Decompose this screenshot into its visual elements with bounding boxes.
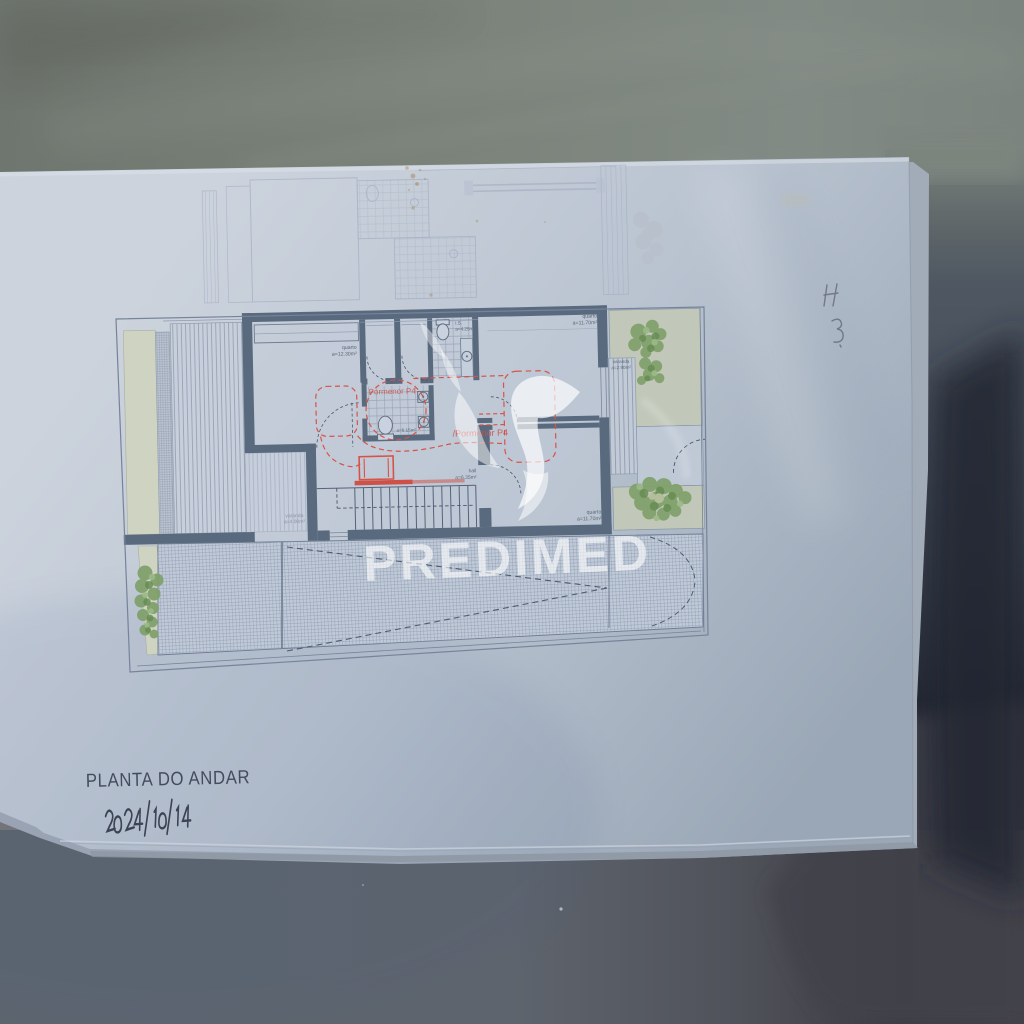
svg-text:varanda: varanda <box>613 359 630 364</box>
svg-text:a=4.25m²: a=4.25m² <box>455 326 475 331</box>
svg-text:quarto: quarto <box>587 509 602 515</box>
svg-text:PLANTA DO ANDAR: PLANTA DO ANDAR <box>86 766 251 791</box>
svg-text:a=6.15m²: a=6.15m² <box>396 427 416 432</box>
svg-text:quarto: quarto <box>342 345 357 351</box>
svg-text:a=11.70m²: a=11.70m² <box>577 516 602 523</box>
svg-text:a=12.30m²: a=12.30m² <box>332 351 357 358</box>
svg-text:a=11.70m²: a=11.70m² <box>573 320 598 327</box>
svg-text:PREDIMED: PREDIMED <box>362 524 652 592</box>
svg-text:quarto: quarto <box>582 314 597 320</box>
svg-text:I.S.: I.S. <box>455 320 462 325</box>
svg-text:a=2.90m²: a=2.90m² <box>611 365 631 370</box>
svg-text:Pormenor P4: Pormenor P4 <box>369 386 417 396</box>
svg-text:hall: hall <box>469 468 477 474</box>
